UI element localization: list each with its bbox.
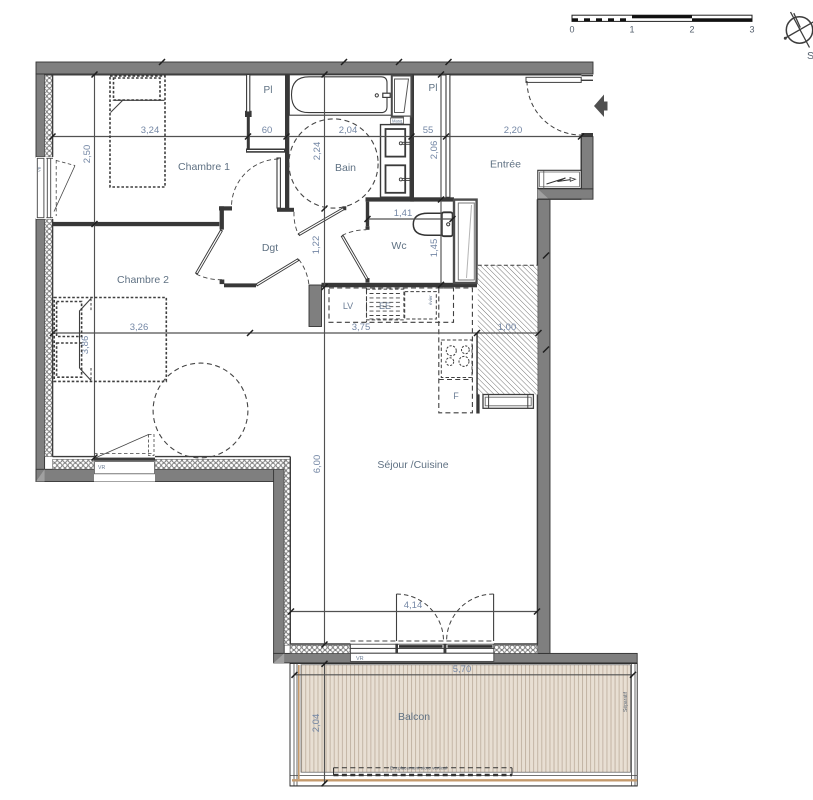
svg-text:60: 60: [262, 125, 273, 136]
svg-text:Dgt: Dgt: [262, 242, 278, 254]
svg-text:Bain: Bain: [335, 162, 356, 174]
svg-text:Masq.: Masq.: [392, 119, 403, 124]
svg-text:2,24: 2,24: [312, 142, 323, 161]
svg-text:Chambre 1: Chambre 1: [178, 161, 230, 173]
svg-text:Pl: Pl: [429, 83, 438, 94]
svg-text:2,50: 2,50: [82, 145, 93, 164]
svg-text:S: S: [807, 50, 813, 62]
svg-text:1,00: 1,00: [498, 322, 517, 333]
svg-text:1,22: 1,22: [311, 236, 322, 255]
svg-text:1,41: 1,41: [394, 208, 413, 219]
svg-text:6,00: 6,00: [312, 455, 323, 474]
svg-text:Entrée: Entrée: [490, 159, 521, 171]
svg-text:EE: EE: [379, 301, 391, 311]
svg-text:1,45: 1,45: [429, 239, 440, 258]
svg-text:2,04: 2,04: [339, 125, 358, 136]
svg-text:2,06: 2,06: [429, 141, 440, 160]
svg-text:3: 3: [749, 25, 754, 35]
svg-text:1: 1: [629, 25, 634, 35]
svg-text:3,26: 3,26: [130, 322, 149, 333]
svg-text:LV: LV: [343, 301, 353, 311]
svg-text:Séparatif: Séparatif: [623, 691, 629, 712]
svg-text:VR: VR: [356, 656, 364, 662]
svg-text:Chambre 2: Chambre 2: [117, 274, 169, 286]
svg-text:Em.placement store vertical: Em.placement store vertical: [390, 766, 447, 771]
svg-text:5,70: 5,70: [453, 664, 472, 675]
svg-text:évier: évier: [428, 295, 433, 305]
svg-text:2: 2: [689, 25, 694, 35]
svg-text:4,14: 4,14: [404, 600, 423, 611]
svg-text:VR: VR: [98, 465, 105, 471]
svg-text:2,20: 2,20: [504, 125, 523, 136]
svg-text:VB: VB: [37, 166, 42, 172]
svg-text:Séjour /Cuisine: Séjour /Cuisine: [377, 459, 448, 471]
svg-text:2,04: 2,04: [311, 714, 322, 733]
svg-text:3,75: 3,75: [352, 322, 371, 333]
svg-text:Balcon: Balcon: [398, 711, 430, 723]
svg-text:Pl: Pl: [264, 85, 273, 96]
svg-text:F: F: [453, 391, 459, 401]
svg-text:3,24: 3,24: [141, 125, 160, 136]
svg-text:55: 55: [423, 125, 434, 136]
svg-text:Wc: Wc: [391, 240, 406, 252]
svg-text:0: 0: [569, 25, 574, 35]
